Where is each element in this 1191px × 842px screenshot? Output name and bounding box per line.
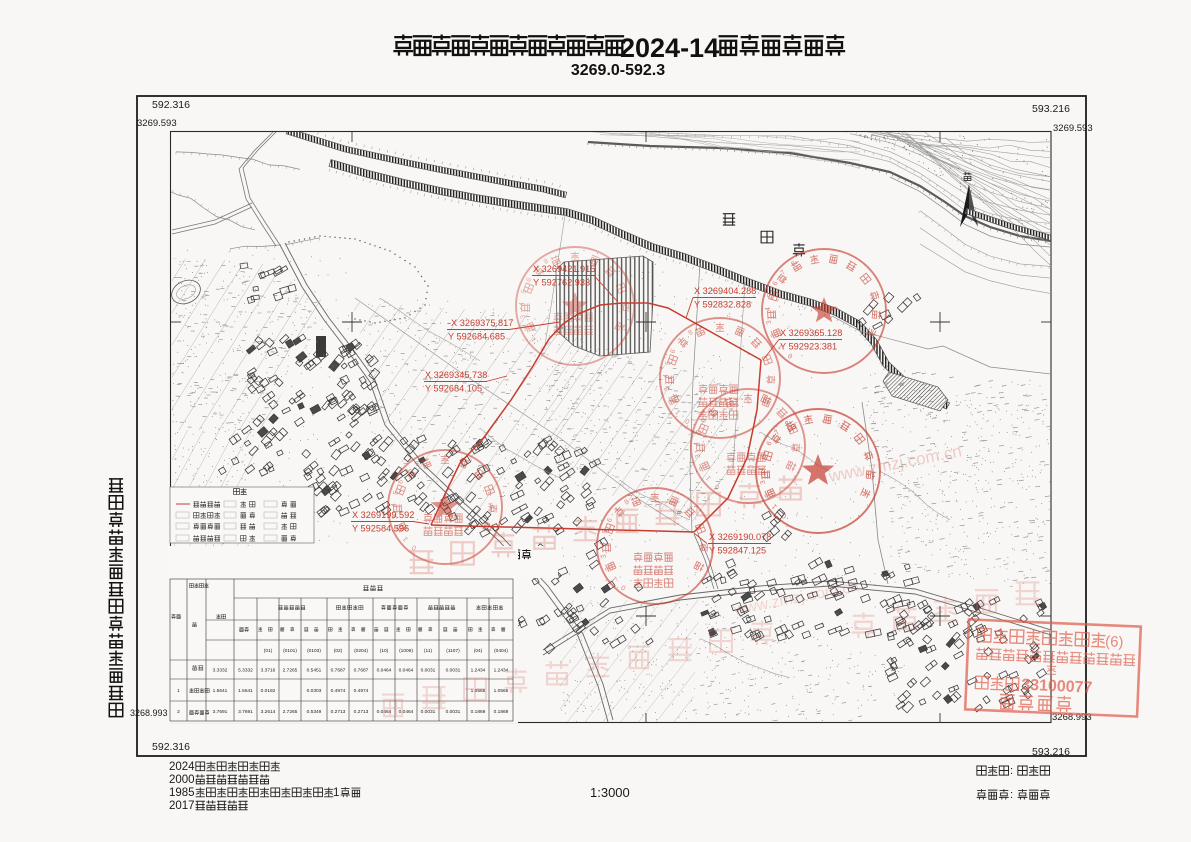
- svg-text:1985: 1985: [169, 787, 195, 799]
- svg-text::: :: [1010, 765, 1013, 777]
- svg-text:2024: 2024: [169, 761, 195, 773]
- svg-text::: :: [1010, 789, 1013, 801]
- svg-text:3268.993: 3268.993: [130, 708, 168, 718]
- svg-text:593.216: 593.216: [1032, 103, 1070, 115]
- svg-text:1:3000: 1:3000: [590, 785, 630, 800]
- svg-text:592.316: 592.316: [152, 99, 190, 111]
- svg-text:2017: 2017: [169, 800, 195, 812]
- svg-text:3269.593: 3269.593: [137, 118, 177, 129]
- svg-text:3269.0-592.3: 3269.0-592.3: [571, 62, 665, 79]
- svg-text:2000: 2000: [169, 774, 195, 786]
- svg-text:1: 1: [333, 787, 339, 799]
- svg-text:2024-14: 2024-14: [620, 33, 719, 63]
- svg-text:3269.593: 3269.593: [1053, 123, 1093, 134]
- svg-text:593.216: 593.216: [1032, 746, 1070, 758]
- svg-text:592.316: 592.316: [152, 741, 190, 753]
